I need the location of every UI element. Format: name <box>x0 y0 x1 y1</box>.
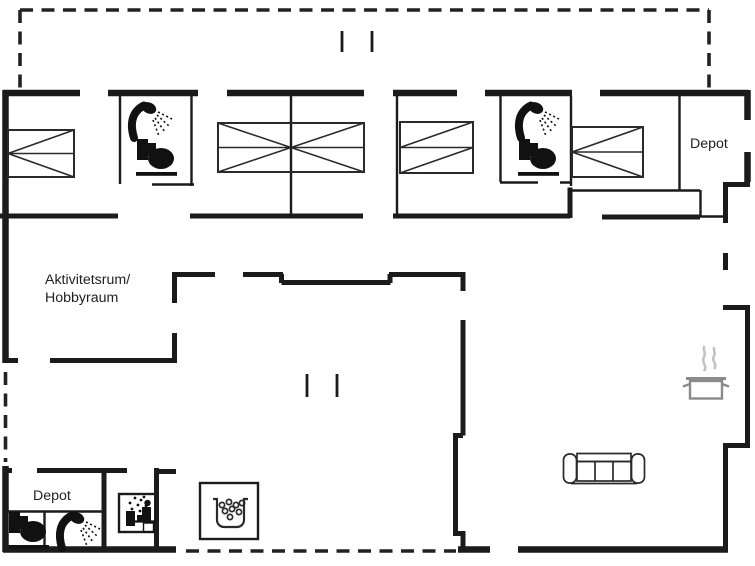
steam-icon <box>713 347 715 369</box>
bed-top-right <box>572 127 643 177</box>
cooking-pot-icon <box>683 346 729 399</box>
bathroom-bottom-left <box>8 510 100 549</box>
toilet-icon <box>136 139 177 176</box>
activity-room-label-line2: Hobbyraum <box>45 290 118 306</box>
bathroom-top-right <box>518 100 559 176</box>
sauna-icon <box>119 494 157 532</box>
sofa-icon <box>564 454 645 484</box>
floor-plan: Aktivitetsrum/ Hobbyraum Depot Depot <box>0 0 755 566</box>
depot-top-right-label: Depot <box>690 136 728 152</box>
bed-top-left <box>8 130 74 177</box>
shower-icon <box>132 100 172 138</box>
activity-room-label-line1: Aktivitetsrum/ <box>45 272 130 288</box>
steam-icon <box>703 346 705 371</box>
bed-top-middle-right <box>400 122 473 173</box>
toilet-icon <box>8 512 49 549</box>
toilet-icon <box>518 139 559 176</box>
whirlpool-icon <box>200 483 258 539</box>
bathroom-top-left <box>132 100 177 176</box>
depot-bottom-left-label: Depot <box>33 488 71 504</box>
shower-icon <box>519 100 559 138</box>
shower-icon <box>60 510 100 548</box>
